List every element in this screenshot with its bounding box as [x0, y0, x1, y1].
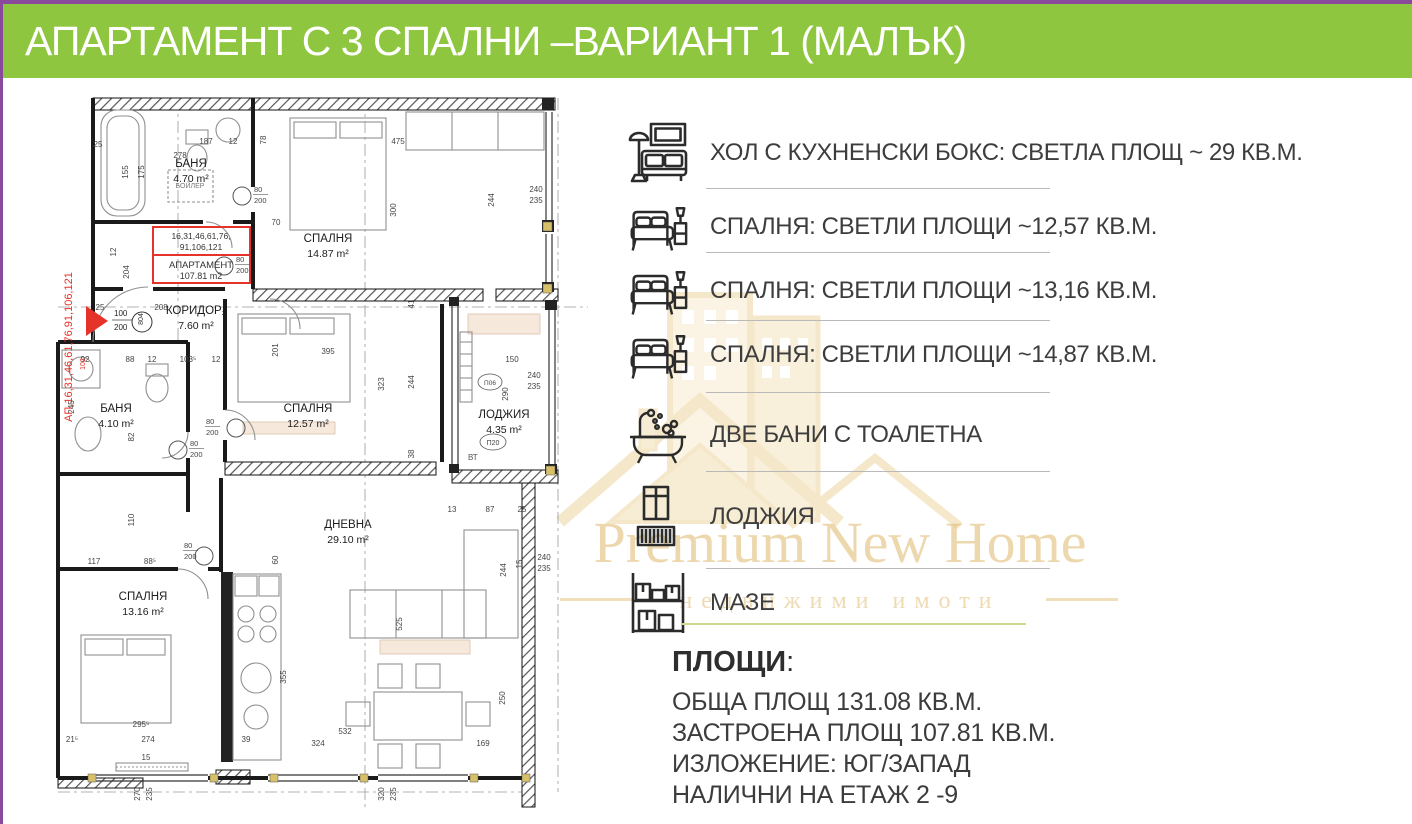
dim-label: 38 — [407, 449, 416, 458]
door-width: 80 — [206, 417, 214, 426]
dim-label: 117 — [88, 557, 101, 566]
dim-label: 88 — [126, 355, 135, 364]
door-circle — [227, 419, 245, 437]
door-circle — [169, 441, 187, 459]
door-height: 200 — [236, 266, 249, 275]
dim-label: 13 — [448, 505, 457, 514]
door-circle — [195, 547, 213, 565]
dim-label: 39 — [242, 735, 251, 744]
dim-label: 187 — [199, 137, 213, 146]
dim-label: 235 — [145, 787, 154, 801]
separator — [706, 471, 1050, 472]
red-small-label: 102 — [80, 358, 87, 370]
feature-label: ХОЛ С КУХНЕНСКИ БОКС: СВЕТЛА ПЛОЩ ~ 29 К… — [710, 139, 1302, 167]
room-area: 14.87 m² — [307, 248, 349, 260]
room-area: 29.10 m² — [327, 534, 369, 546]
areas-heading-colon: : — [786, 646, 794, 678]
dim-label: 395 — [321, 347, 335, 356]
areas-heading: ПЛОЩИ: — [672, 646, 1055, 679]
bed-icon — [626, 197, 690, 257]
dim-label: 25 — [96, 303, 105, 312]
dim-label: 235 — [529, 196, 543, 205]
entry-circle-label: 804 — [138, 313, 145, 325]
dim-label: 78 — [259, 135, 268, 144]
door-height: 200 — [184, 552, 197, 561]
dim-label: 88⁵ — [144, 557, 156, 566]
dim-label: 208 — [154, 303, 168, 312]
entry-width: 100 — [114, 309, 128, 318]
dim-label: 525 — [395, 617, 404, 631]
dim-label: 278 — [173, 151, 187, 160]
title-banner: АПАРТАМЕНТ С 3 СПАЛНИ –ВАРИАНТ 1 (МАЛЪК) — [3, 4, 1412, 78]
bed-icon — [626, 325, 690, 385]
room-name: ДНЕВНА — [324, 519, 372, 531]
dim-label: 270 — [133, 787, 142, 801]
page: Premium New Home недвижими имоти АПАРТАМ… — [0, 0, 1412, 824]
feature-bathrooms: ДВЕ БАНИ С ТОАЛЕТНА — [626, 400, 982, 470]
separator — [706, 188, 1050, 189]
boiler-label: БОЙЛЕР — [176, 181, 205, 190]
areas-line-total: ОБЩА ПЛОЩ 131.08 КВ.М. — [672, 687, 1055, 718]
dim-label: 244 — [487, 193, 496, 207]
separator-olive — [682, 623, 1026, 625]
feature-bedroom-3: СПАЛНЯ: СВЕТЛИ ПЛОЩИ ~14,87 КВ.М. — [626, 320, 1157, 390]
dim-label: 15 — [515, 559, 524, 568]
room-name: СПАЛНЯ — [304, 233, 353, 245]
separator — [706, 392, 1050, 393]
dim-label: 15 — [142, 753, 151, 762]
pale-fixtures — [243, 314, 540, 654]
areas-line-floors: НАЛИЧНИ НА ЕТАЖ 2 -9 — [672, 780, 1055, 811]
room-name: СПАЛНЯ — [284, 403, 333, 415]
room-name: БАНЯ — [100, 403, 132, 415]
feature-bedroom-2: СПАЛНЯ: СВЕТЛИ ПЛОЩИ ~13,16 КВ.М. — [626, 256, 1157, 326]
feature-label: ЛОДЖИЯ — [710, 503, 815, 531]
dim-label: 12 — [109, 247, 118, 256]
dim-label: 150 — [505, 355, 519, 364]
feature-loggia: ЛОДЖИЯ — [626, 482, 815, 552]
dim-label: 169 — [476, 739, 490, 748]
dim-label: 25 — [518, 505, 527, 514]
dim-label: 103⁵ — [180, 355, 197, 364]
p20-label: П20 — [487, 440, 500, 447]
room-area: 13.16 m² — [122, 606, 164, 618]
dim-label: 532 — [338, 727, 352, 736]
dim-label: 320 — [377, 787, 386, 801]
dim-label: 240 — [537, 553, 551, 562]
dim-label: 110 — [127, 513, 136, 526]
dim-label: 204 — [122, 265, 131, 279]
bathtub-icon — [626, 403, 690, 467]
dim-label: 475 — [391, 137, 405, 146]
room-name: СПАЛНЯ — [119, 591, 168, 603]
room-area: 12.57 m² — [287, 418, 329, 430]
dim-label: 175 — [137, 165, 146, 179]
dim-label: 324 — [311, 739, 325, 748]
separator — [706, 252, 1050, 253]
areas-summary: ПЛОЩИ: ОБЩА ПЛОЩ 131.08 КВ.М. ЗАСТРОЕНА … — [672, 646, 1055, 811]
dim-label: 21⁵ — [66, 735, 78, 744]
dim-label: 12 — [229, 137, 238, 146]
door-width: 80 — [254, 185, 262, 194]
feature-label: МАЗЕ — [710, 589, 775, 617]
loggia-icon — [626, 485, 690, 549]
p06-label: П06 — [484, 380, 496, 387]
sofa-icon — [626, 121, 690, 185]
dim-label: 355 — [279, 670, 288, 684]
page-title: АПАРТАМЕНТ С 3 СПАЛНИ –ВАРИАНТ 1 (МАЛЪК) — [3, 4, 1412, 78]
dim-label: 60 — [271, 555, 280, 564]
dim-label: 274 — [141, 735, 155, 744]
red-side-text: АП,16,31,46,61,76,91,106,121 — [63, 272, 75, 422]
feature-label: СПАЛНЯ: СВЕТЛИ ПЛОЩИ ~12,57 КВ.М. — [710, 213, 1157, 241]
door-width: 80 — [184, 541, 192, 550]
storage-shelf-icon — [626, 571, 690, 635]
dim-label: 201 — [271, 343, 280, 357]
dim-label: 87 — [486, 505, 495, 514]
dim-label: 290 — [501, 387, 510, 401]
dim-label: 300 — [389, 203, 398, 217]
areas-heading-text: ПЛОЩИ — [672, 646, 786, 678]
bed-icon — [626, 261, 690, 321]
dim-label: 244 — [499, 563, 508, 577]
dim-label: 70 — [272, 218, 281, 227]
feature-label: СПАЛНЯ: СВЕТЛИ ПЛОЩИ ~13,16 КВ.М. — [710, 277, 1157, 305]
feature-livingroom: ХОЛ С КУХНЕНСКИ БОКС: СВЕТЛА ПЛОЩ ~ 29 К… — [626, 118, 1302, 188]
left-accent-strip — [0, 0, 3, 824]
entry-height: 200 — [114, 323, 128, 332]
dim-label: 82 — [127, 432, 136, 441]
areas-line-built: ЗАСТРОЕНА ПЛОЩ 107.81 КВ.М. — [672, 718, 1055, 749]
feature-label: СПАЛНЯ: СВЕТЛИ ПЛОЩИ ~14,87 КВ.М. — [710, 341, 1157, 369]
dim-label: 155 — [121, 165, 130, 179]
floorplan: 8020080200802008020080200 БАНЯ4.70 m²СПА… — [28, 92, 612, 820]
dim-label: 235 — [527, 382, 541, 391]
door-width: 80 — [236, 255, 244, 264]
door-height: 200 — [206, 428, 219, 437]
floorplan-drawing: 8020080200802008020080200 БАНЯ4.70 m²СПА… — [28, 92, 612, 820]
door-width: 80 — [190, 439, 198, 448]
dim-label: 12 — [148, 355, 157, 364]
room-name: КОРИДОР₂ — [166, 305, 226, 317]
dim-label: 323 — [377, 377, 386, 391]
dim-label: 240 — [527, 371, 541, 380]
dim-label: 12 — [212, 355, 221, 364]
door-height: 200 — [254, 196, 267, 205]
red-box-line3: АПАРТАМЕНТ — [169, 260, 233, 271]
room-area: 7.60 m² — [178, 320, 214, 332]
dim-label: 240 — [529, 185, 543, 194]
feature-basement: МАЗЕ — [626, 568, 775, 638]
dim-label: 25 — [94, 140, 103, 149]
areas-line-exposure: ИЗЛОЖЕНИЕ: ЮГ/ЗАПАД — [672, 749, 1055, 780]
dim-label: 244 — [407, 375, 416, 389]
door-circle — [233, 187, 251, 205]
dim-label: 235 — [537, 564, 551, 573]
red-box-line1: 16,31,46,61,76, — [171, 231, 230, 241]
red-box-line2: 91,106,121 — [180, 242, 223, 252]
dim-label: 295⁵ — [133, 720, 150, 729]
dim-label: 41 — [407, 299, 416, 308]
feature-label: ДВЕ БАНИ С ТОАЛЕТНА — [710, 421, 982, 449]
door-height: 200 — [190, 450, 203, 459]
hatched-walls — [58, 98, 558, 807]
room-name: ЛОДЖИЯ — [478, 409, 529, 421]
red-box-line4: 107.81 m2 — [180, 271, 223, 281]
dim-label: 235 — [389, 787, 398, 801]
dim-label: 250 — [498, 691, 507, 705]
room-area: 4.10 m² — [98, 418, 134, 430]
vt-label: ВТ — [468, 453, 478, 462]
